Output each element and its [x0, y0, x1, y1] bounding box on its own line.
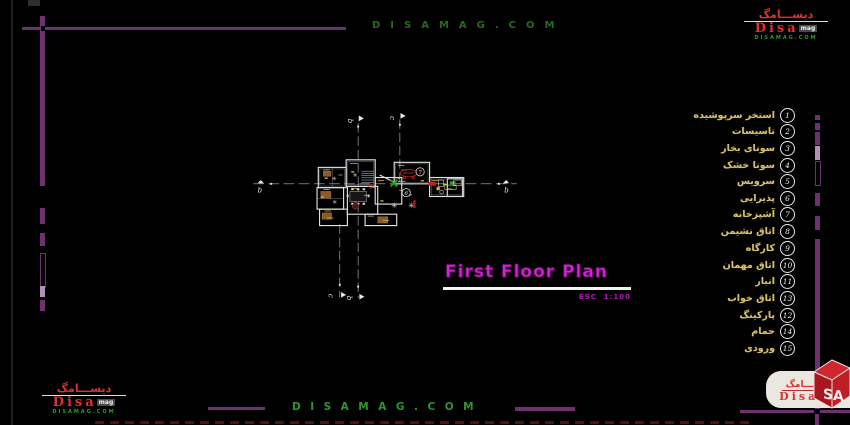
legend-item: حمام14 — [751, 324, 795, 338]
frame-left-light — [40, 286, 45, 297]
svg-text:✳: ✳ — [332, 199, 337, 206]
logo-latin-text: Disamag — [42, 396, 126, 410]
dimension-text-marks — [321, 171, 447, 201]
frame-left-hollow — [40, 253, 46, 288]
svg-text:c: c — [388, 116, 396, 120]
legend-item: سونا خشک4 — [723, 158, 795, 172]
frame-cross-dot — [41, 26, 45, 31]
logo-domain-text: DISAMAG.COM — [744, 36, 828, 41]
legend-number-circle: 10 — [780, 258, 795, 273]
scale-label: ESC 1:100 — [510, 293, 631, 301]
legend-item: سرویس5 — [737, 174, 795, 188]
frame-left-dash-1 — [40, 208, 45, 224]
watermark-top: DISAMAG.COM — [372, 20, 564, 31]
legend-number-circle: 9 — [780, 241, 795, 256]
svg-text:c: c — [326, 294, 334, 298]
legend-number-circle: 14 — [780, 324, 795, 339]
legend-item: اتاق نشیمن8 — [721, 224, 795, 238]
logo-mag-badge: mag — [97, 399, 116, 406]
svg-text:b: b — [258, 187, 262, 195]
disamag-logo-top: دیســـامگ Disamag DISAMAG.COM — [744, 9, 828, 41]
title-underline — [443, 287, 631, 290]
legend-item: سونای بخار3 — [721, 141, 795, 155]
legend-number-circle: 2 — [780, 124, 795, 139]
frame-right-dash-3 — [815, 132, 820, 145]
svg-text:✳: ✳ — [353, 172, 358, 179]
green-rect — [450, 181, 456, 184]
sheet-edge-line — [11, 0, 13, 425]
frame-bottom-center-segment — [515, 407, 575, 411]
sa-cube-logo: SA — [806, 354, 850, 412]
legend-item: اتاق خواب13 — [727, 291, 795, 305]
svg-text:b: b — [504, 187, 508, 195]
legend-number-circle: 7 — [780, 207, 795, 222]
logo-latin-text: Disamag — [744, 22, 828, 36]
legend-item: پارکینگ12 — [739, 308, 795, 322]
stairs-symbol — [361, 171, 374, 182]
floor-plan-drawing: b c c b b b — [250, 70, 680, 390]
frame-right-dash-1 — [815, 115, 820, 120]
room-number-6: 6 — [402, 189, 410, 198]
legend-item: کارگاه9 — [746, 241, 795, 255]
legend-item: تاسیسات2 — [732, 124, 795, 138]
legend-number-circle: 1 — [780, 108, 795, 123]
legend-number-circle: 5 — [780, 174, 795, 189]
frame-bottom-left-segment — [208, 407, 265, 410]
legend-item: انبار11 — [755, 274, 795, 288]
legend-number-circle: 4 — [780, 158, 795, 173]
frame-top-line — [22, 27, 346, 30]
legend-number-circle: 11 — [780, 274, 795, 289]
disamag-logo-bottom-left: دیســـامگ Disamag DISAMAG.COM — [42, 383, 126, 415]
svg-text:b: b — [345, 296, 353, 300]
frame-right-dash-5 — [815, 216, 820, 230]
plan-title: First Floor Plan — [445, 262, 608, 282]
dimension-marks — [323, 164, 452, 221]
legend-number-circle: 8 — [780, 224, 795, 239]
legend-item: ورودی15 — [744, 341, 795, 355]
watermark-bottom: DISAMAG.COM — [292, 401, 483, 413]
legend-number-circle: 12 — [780, 308, 795, 323]
legend-number-circle: 6 — [780, 191, 795, 206]
svg-text:7: 7 — [418, 170, 422, 176]
bottom-cutoff-text-strip — [95, 421, 755, 424]
room-number-7: 7 — [416, 168, 424, 177]
sheet-corner-notch — [28, 0, 40, 6]
frame-left-dash-3 — [40, 300, 45, 311]
red-car-symbol — [401, 169, 417, 178]
legend-number-circle: 15 — [780, 341, 795, 356]
yellow-square — [437, 187, 440, 190]
svg-text:SA: SA — [823, 386, 844, 405]
frame-left-line-solid — [40, 16, 45, 186]
plan-walls — [317, 160, 464, 226]
legend-item: استخر سرپوشیده1 — [693, 108, 795, 122]
legend-number-circle: 13 — [780, 291, 795, 306]
svg-text:✳: ✳ — [391, 201, 397, 210]
legend-item: آشپزخانه7 — [733, 207, 795, 221]
frame-right-light — [815, 146, 820, 160]
logo-mag-badge: mag — [799, 25, 818, 32]
legend-item: اتاق مهمان10 — [723, 258, 795, 272]
frame-right-dash-4 — [815, 193, 820, 206]
legend-item: پذیرایی6 — [740, 191, 795, 205]
legend-number-circle: 3 — [780, 141, 795, 156]
svg-text:b: b — [346, 119, 354, 123]
svg-text:✳: ✳ — [332, 176, 337, 183]
frame-right-dash-2 — [815, 123, 820, 130]
frame-left-dash-2 — [40, 233, 45, 246]
drawing-sheet: DISAMAG.COM دیســـامگ Disamag DISAMAG.CO… — [0, 0, 850, 425]
logo-domain-text: DISAMAG.COM — [42, 410, 126, 415]
svg-text:6: 6 — [404, 191, 408, 197]
frame-right-hollow — [815, 161, 821, 186]
